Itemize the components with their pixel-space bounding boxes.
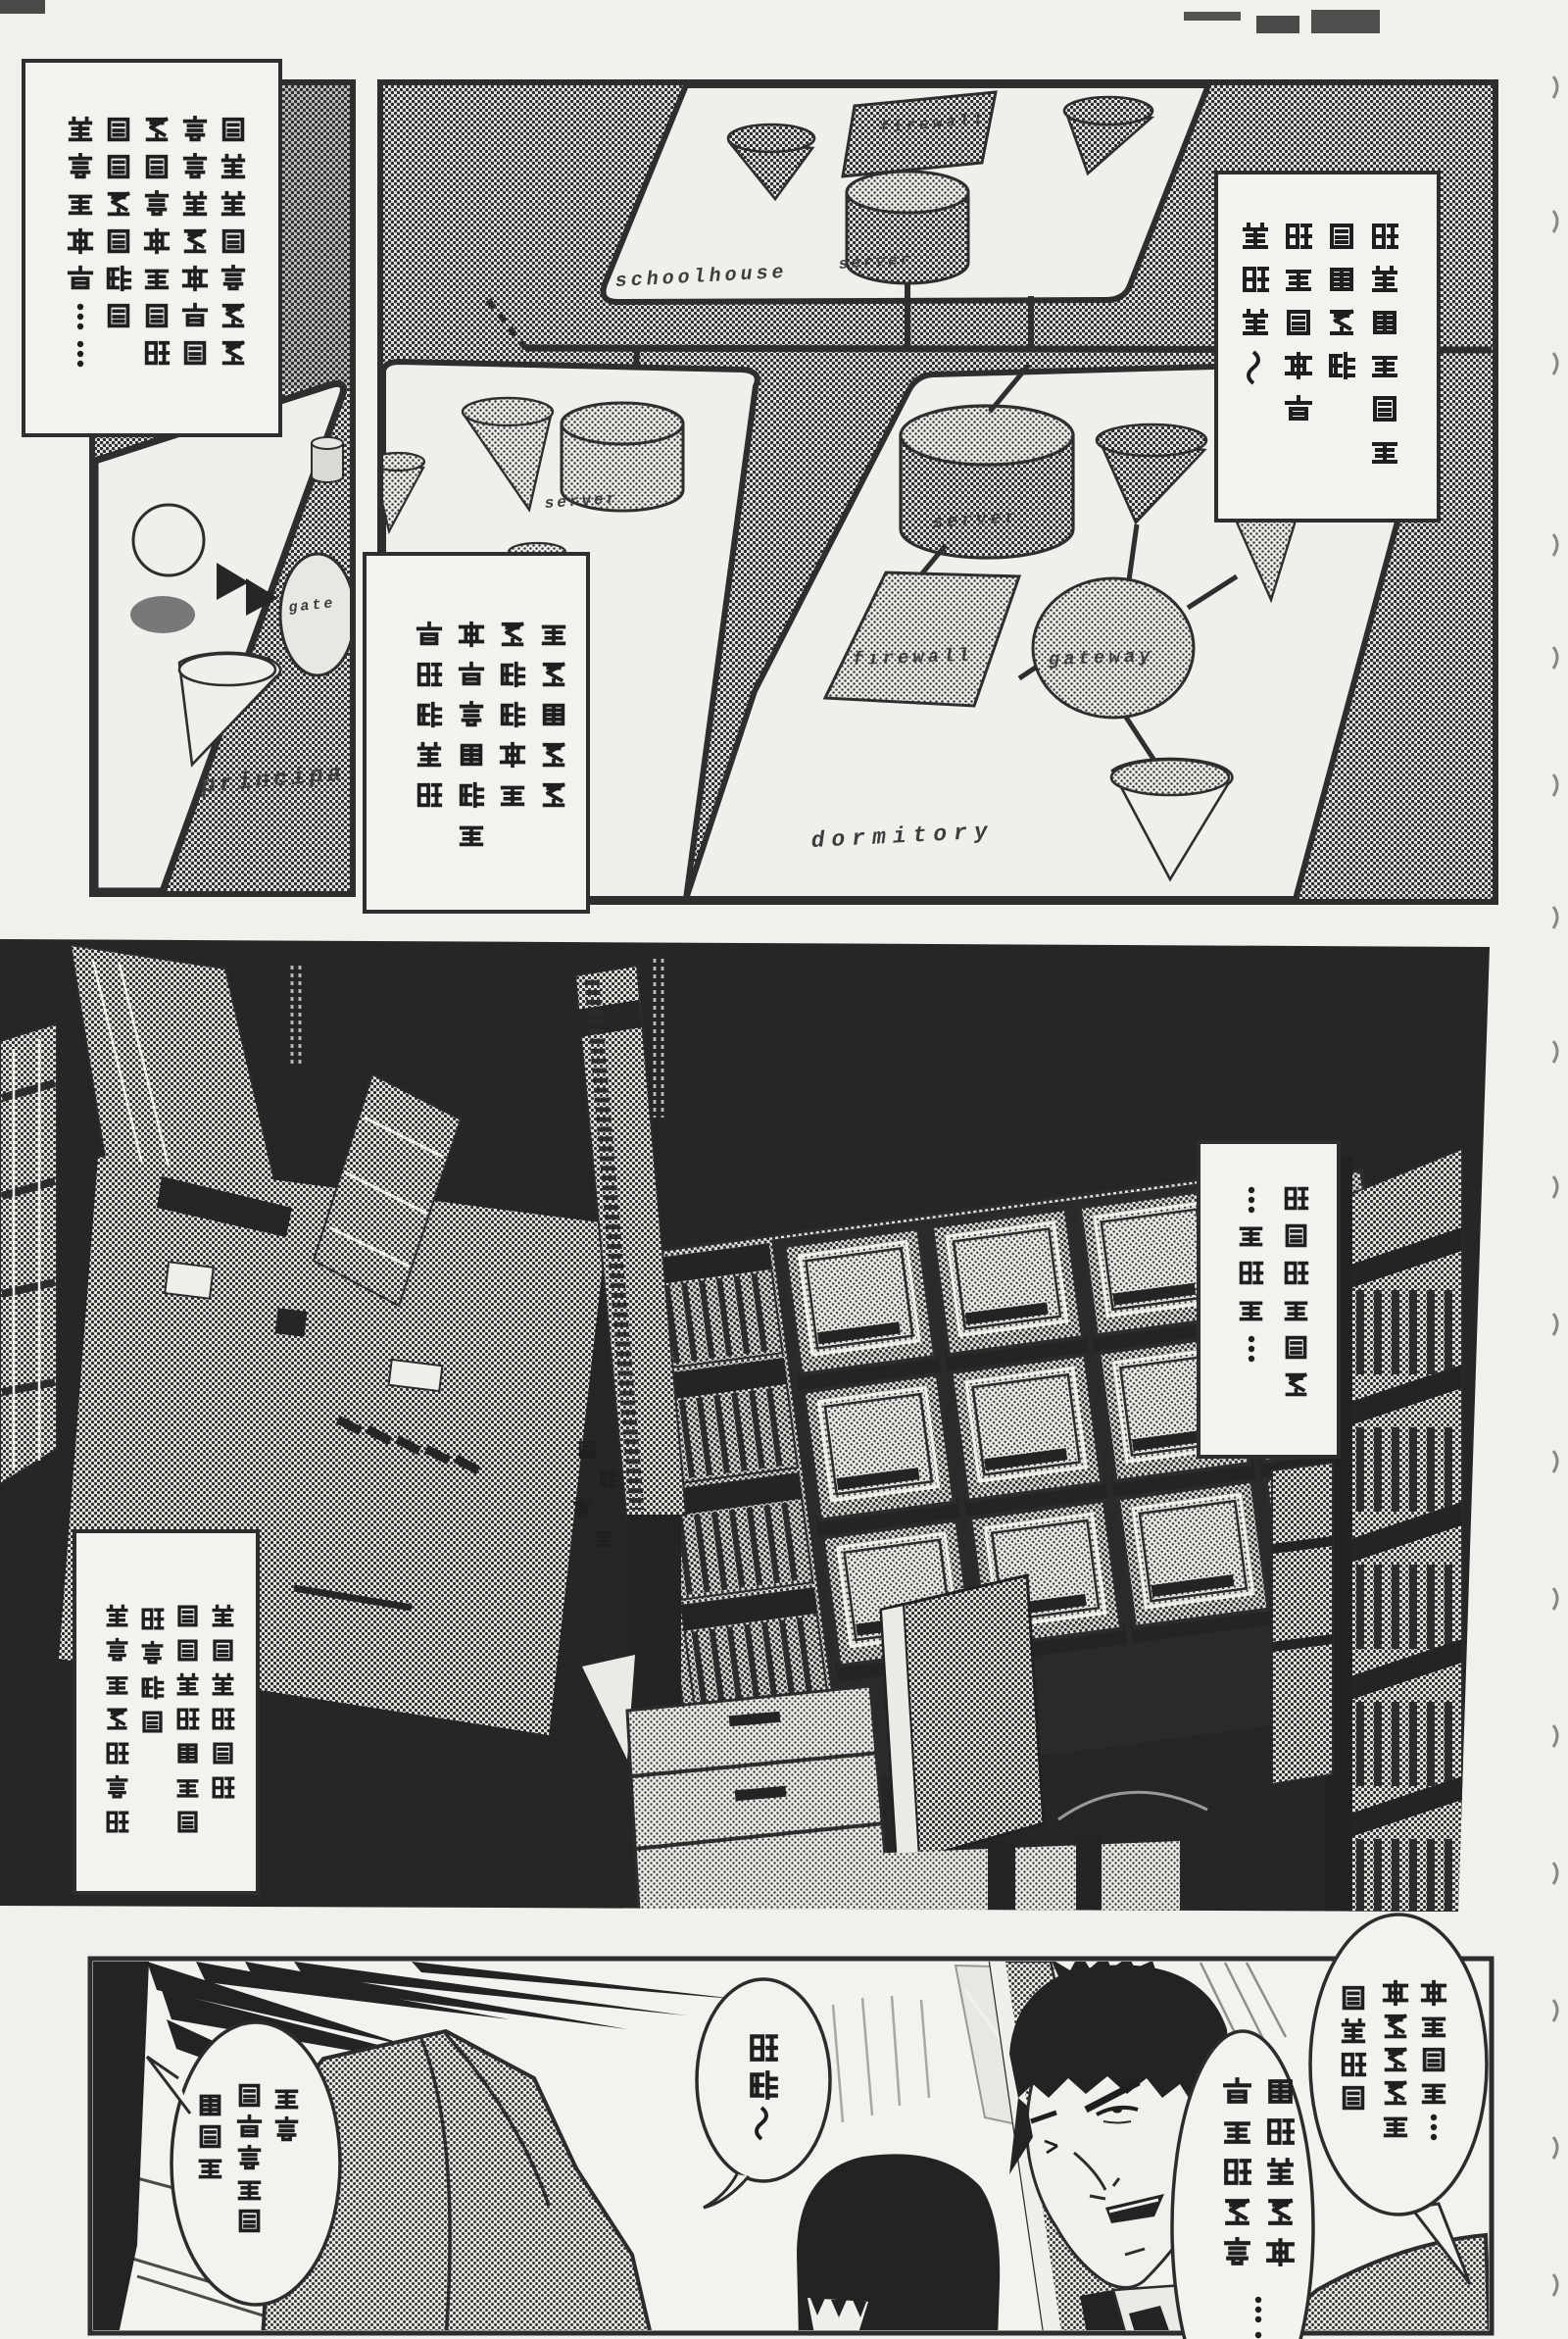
svg-text:firewall: firewall (852, 645, 973, 671)
svg-text:gateway: gateway (1048, 645, 1154, 671)
